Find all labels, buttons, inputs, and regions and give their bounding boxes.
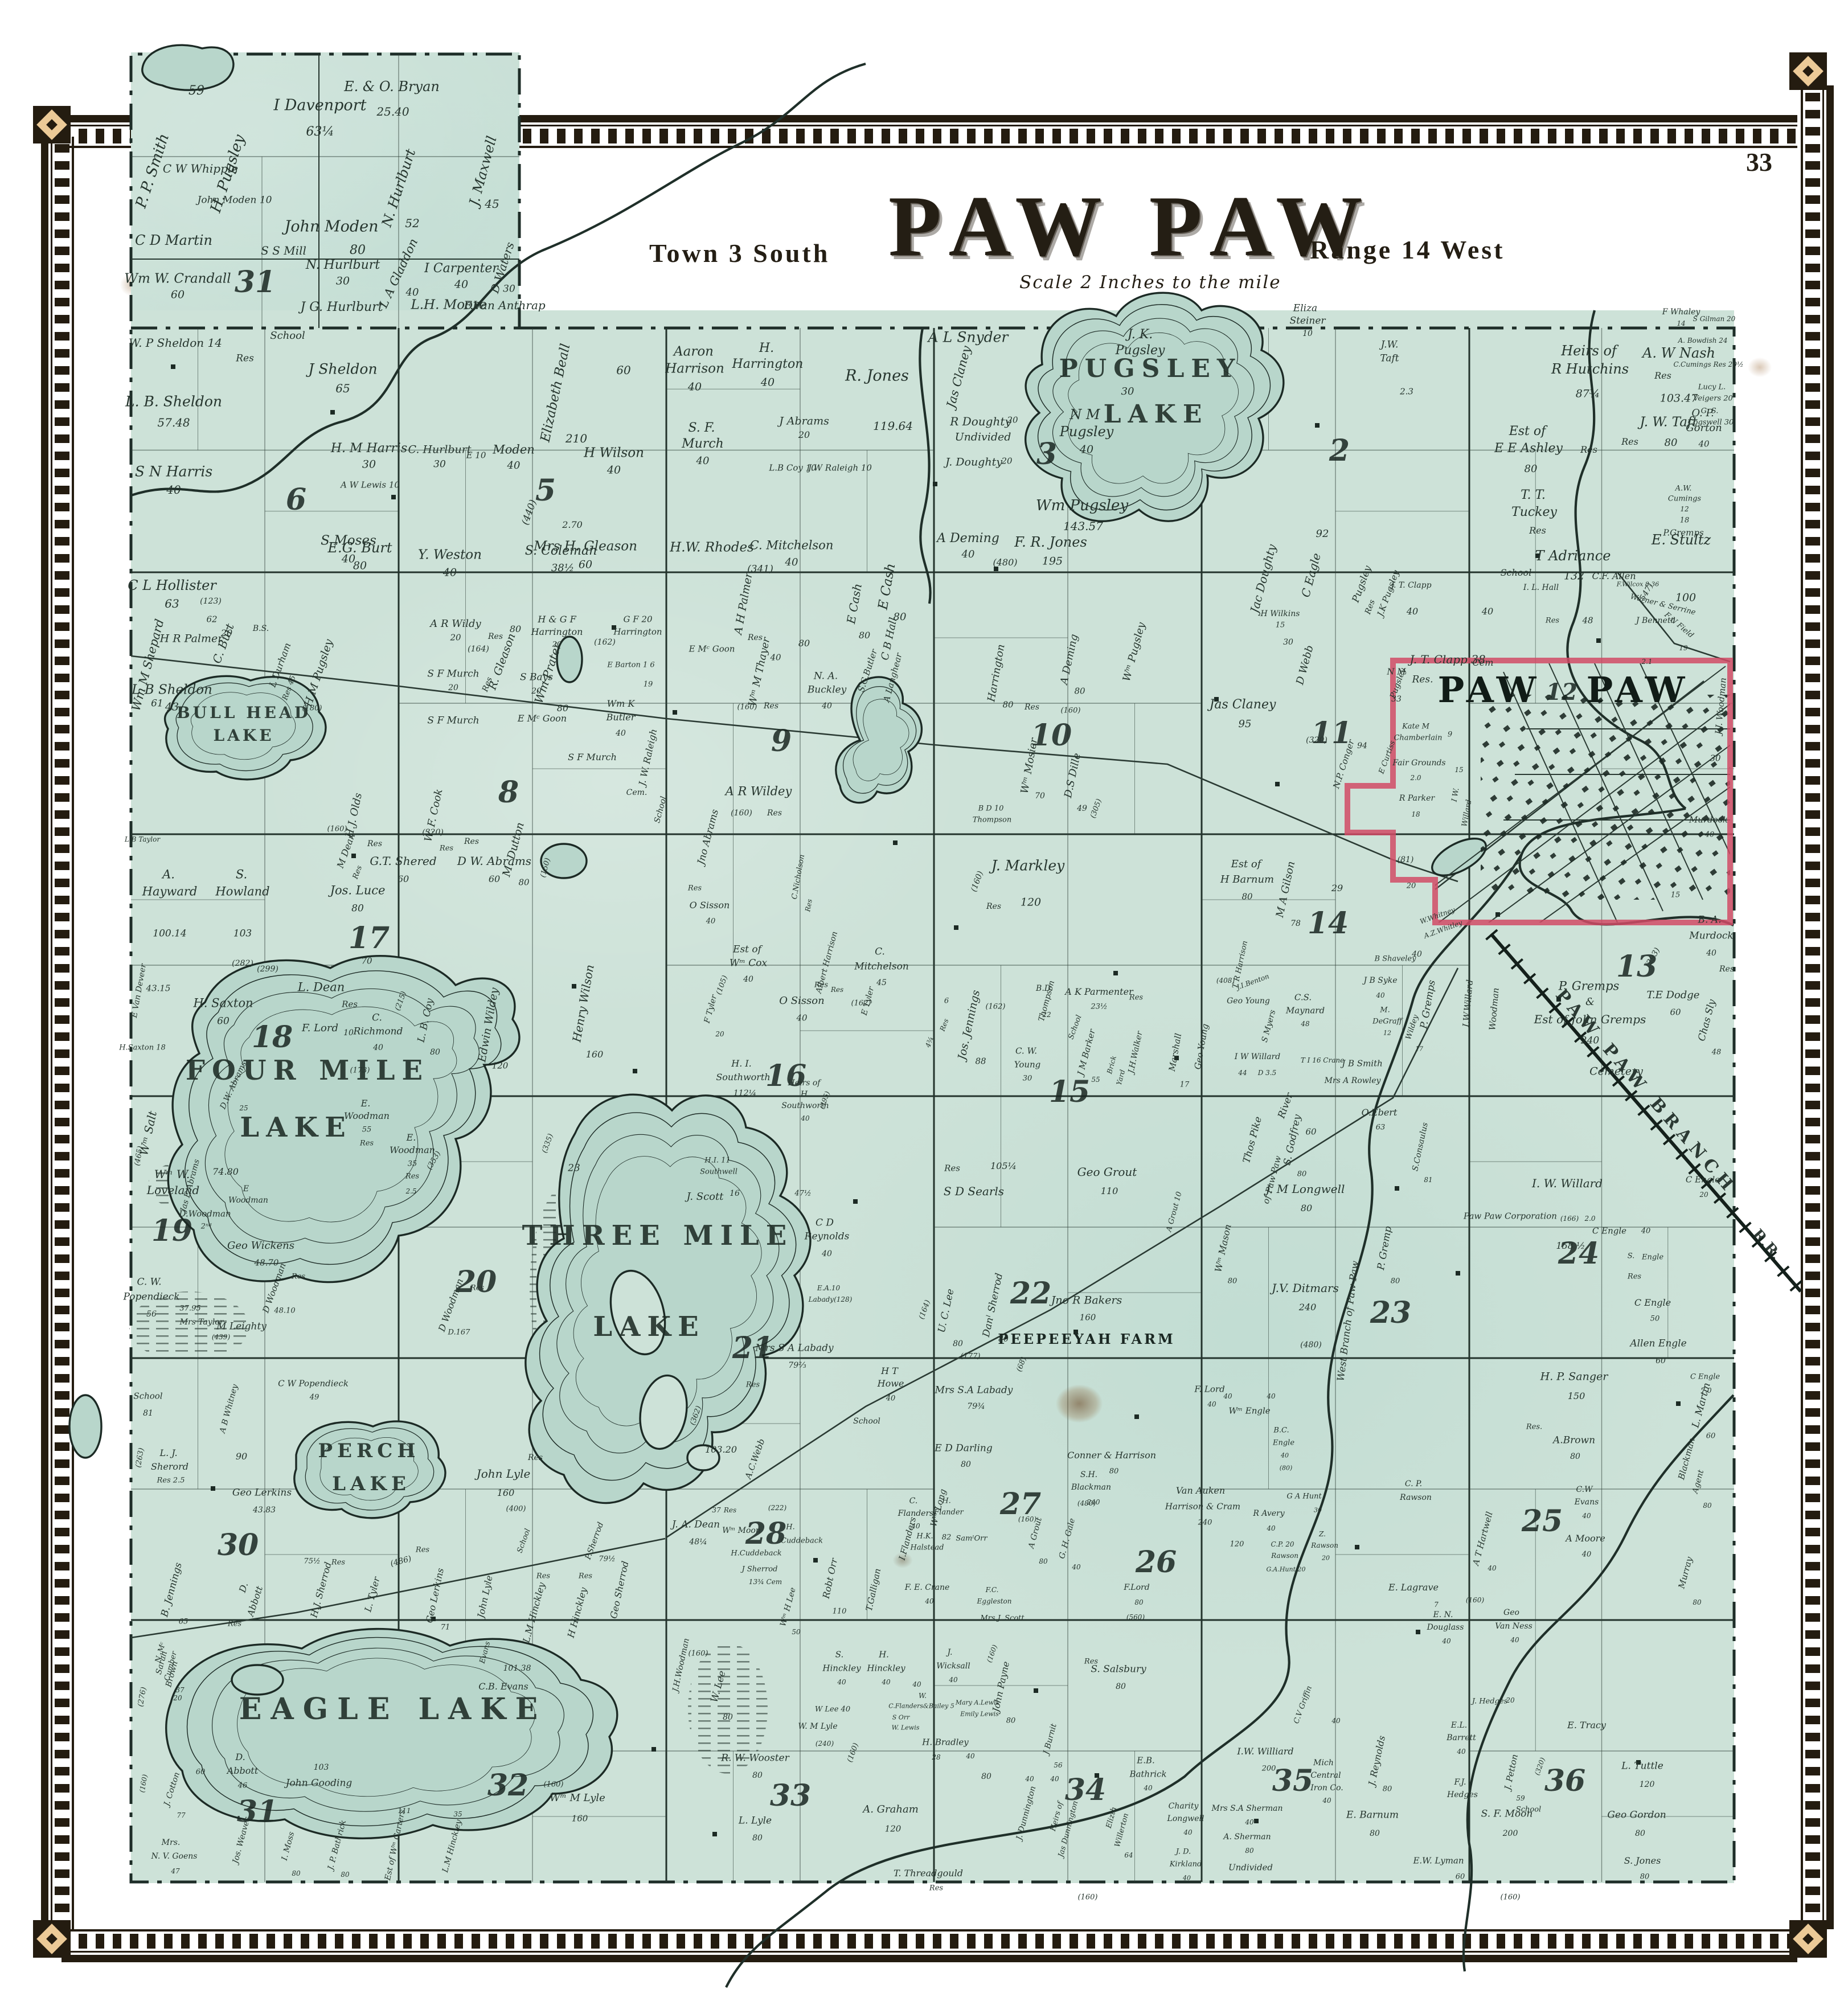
owner-label: 200: [1262, 1765, 1276, 1773]
owner-label: D.S Dille: [1063, 752, 1083, 799]
owner-label: 40: [696, 456, 710, 466]
owner-label: Wᵐ Moon: [722, 1527, 761, 1535]
owner-label: Res: [352, 864, 363, 880]
owner-label: 48: [1582, 617, 1593, 625]
owner-label: J.W.: [1381, 341, 1399, 350]
owner-label: J. P. Bathrick: [327, 1819, 348, 1871]
owner-label: (282): [232, 959, 253, 967]
owner-label: Van Auken: [1176, 1486, 1225, 1495]
owner-label: 103: [233, 929, 252, 939]
owner-label: Reynolds: [805, 1232, 850, 1242]
owner-label: Res 2.5: [157, 1477, 185, 1485]
owner-label: 35: [453, 1811, 462, 1818]
owner-label: M Leighty: [216, 1322, 267, 1332]
owner-label: Undivided: [1228, 1864, 1273, 1872]
owner-label: Est of: [1231, 859, 1261, 870]
owner-label: 47: [171, 1868, 179, 1875]
owner-label: Richmond: [354, 1027, 403, 1037]
owner-label: Chamberlain: [1394, 735, 1442, 742]
owner-label: Labady(128): [809, 1296, 853, 1303]
owner-label: Pugsley: [1060, 425, 1114, 438]
section-number: 23: [1370, 1298, 1411, 1328]
lake-label: PERCH: [318, 1441, 420, 1461]
owner-label: Res: [814, 982, 828, 989]
owner-label: E.A.10: [817, 1285, 840, 1291]
owner-label: Hinckley: [867, 1664, 905, 1673]
owner-label: (480): [1300, 1341, 1322, 1349]
map-labels-layer: PAW12PAWPUGSLEYLAKEBULL HEADLAKEFOUR MIL…: [0, 0, 1848, 1993]
page-number: 33: [1746, 147, 1772, 177]
section-number: 14: [1308, 909, 1349, 938]
owner-label: I. Moss: [281, 1831, 296, 1861]
scale-label: Scale 2 Inches to the mile: [1019, 272, 1281, 293]
owner-label: 120: [1021, 897, 1041, 908]
owner-label: 90: [236, 1452, 247, 1461]
owner-label: (480): [993, 558, 1017, 567]
owner-label: J.H.Woodman: [671, 1638, 691, 1692]
owner-label: Res: [1628, 1273, 1641, 1281]
owner-label: 20: [1322, 1555, 1330, 1561]
owner-label: 40: [1376, 992, 1384, 999]
owner-label: 80: [353, 561, 367, 572]
owner-label: Abbott: [246, 1585, 264, 1618]
owner-label: Res: [405, 1173, 419, 1180]
owner-label: 40: [1025, 1775, 1034, 1782]
owner-label: 80: [1245, 1847, 1253, 1854]
owner-label: J. M Longwell: [1266, 1183, 1345, 1195]
owner-label: E Mᶜ Goon: [518, 714, 567, 723]
owner-label: 80: [1297, 1171, 1307, 1178]
owner-label: G A Hunt: [1286, 1493, 1321, 1500]
owner-label: 95: [1239, 719, 1252, 729]
owner-label: 40: [801, 1115, 809, 1122]
owner-label: 65: [335, 383, 350, 394]
owner-label: C Engle: [1686, 1176, 1720, 1184]
owner-label: 65: [179, 1618, 189, 1626]
owner-label: F.Wilcox 8.36: [1617, 581, 1659, 588]
owner-label: (240): [816, 1740, 834, 1747]
owner-label: 40: [925, 1598, 933, 1605]
owner-label: S. F.: [688, 422, 715, 434]
owner-label: 40: [837, 1679, 846, 1686]
owner-label: I.W.Willard: [1462, 979, 1474, 1028]
owner-label: Cumings: [1668, 495, 1701, 503]
owner-label: 70: [1035, 792, 1045, 800]
owner-label: 56: [1054, 1762, 1062, 1769]
owner-label: Res: [367, 840, 382, 848]
owner-label: J G. Hurlburt: [300, 301, 383, 314]
owner-label: 40: [507, 461, 521, 471]
owner-label: Est of: [1509, 425, 1546, 438]
owner-label: 20: [798, 430, 810, 440]
owner-label: 80: [859, 631, 870, 640]
owner-label: 195: [1042, 556, 1063, 567]
owner-label: Flanders: [898, 1510, 934, 1518]
owner-label: (160): [1501, 1894, 1521, 1901]
owner-label: Willerton: [1114, 1812, 1130, 1848]
owner-label: 79½: [599, 1556, 615, 1563]
owner-label: G. H. Gale: [1058, 1518, 1076, 1560]
owner-label: 92: [1316, 529, 1329, 539]
owner-label: U. C. Lee: [937, 1288, 956, 1334]
owner-label: Res: [331, 1559, 345, 1566]
owner-label: I W Willard: [1235, 1053, 1280, 1061]
owner-label: Res: [1364, 598, 1376, 615]
owner-label: 60: [171, 290, 185, 301]
owner-label: 80: [998, 1335, 1009, 1343]
owner-label: 71: [441, 1624, 450, 1631]
owner-label: Charity: [1169, 1802, 1199, 1810]
owner-label: 29: [1331, 884, 1343, 893]
lake-label: LAKE: [332, 1474, 411, 1494]
owner-label: G. S.: [1701, 408, 1719, 415]
owner-label: Res 45: [281, 675, 297, 702]
owner-label: S Orr: [892, 1715, 910, 1721]
owner-label: H: [801, 1090, 808, 1098]
owner-label: P. Gremps: [1559, 981, 1620, 993]
owner-label: 43: [165, 702, 179, 713]
owner-label: R Hutchins: [1551, 362, 1629, 376]
owner-label: Res: [944, 1164, 960, 1173]
owner-label: 18: [1680, 517, 1690, 524]
owner-label: (276): [137, 1687, 148, 1708]
owner-label: (160): [1061, 707, 1081, 715]
owner-label: B.S.: [253, 625, 269, 633]
owner-label: Lucy L.: [1698, 384, 1726, 391]
owner-label: 40: [1705, 831, 1715, 839]
owner-label: R. W. Wooster: [721, 1754, 789, 1764]
owner-label: &: [1585, 997, 1595, 1007]
owner-label: Res: [724, 1507, 736, 1514]
owner-label: H. M Harris: [331, 442, 407, 455]
owner-label: D W. Abrams: [457, 855, 531, 867]
owner-label: S F Murch: [427, 670, 479, 679]
owner-label: 103.20: [705, 1445, 737, 1454]
owner-label: A R Wildey: [726, 786, 792, 798]
owner-label: E.L.: [1451, 1721, 1467, 1729]
section-number: 22: [1010, 1279, 1051, 1309]
owner-label: 63: [1376, 1124, 1386, 1131]
owner-label: H M Pugsley: [303, 638, 335, 708]
owner-label: E Cash: [877, 563, 898, 611]
owner-label: E Tyler: [861, 986, 876, 1016]
owner-label: 2.5: [405, 1188, 416, 1195]
owner-label: Res: [228, 1621, 241, 1628]
owner-label: W.: [919, 1692, 927, 1699]
owner-label: 82: [942, 1534, 952, 1541]
owner-label: Elizth: [1105, 1806, 1118, 1829]
owner-label: 40: [706, 918, 716, 925]
owner-label: Mrs.: [162, 1839, 181, 1847]
owner-label: Res: [416, 1547, 429, 1554]
owner-label: Res: [764, 702, 778, 710]
owner-label: Halstead: [911, 1544, 944, 1552]
owner-label: (495): [818, 1090, 831, 1110]
owner-label: 30: [1710, 754, 1720, 763]
owner-label: 18: [1411, 811, 1420, 818]
owner-label: 94: [1357, 742, 1367, 750]
owner-label: 40: [962, 549, 975, 560]
owner-label: 4¾: [924, 1036, 935, 1048]
owner-label: J. Cotton: [163, 1771, 181, 1807]
owner-label: H.: [759, 342, 774, 355]
owner-label: S Bays: [520, 673, 553, 683]
owner-label: 40: [406, 288, 419, 298]
owner-label: 40: [882, 1679, 890, 1686]
owner-label: Popendieck: [123, 1293, 179, 1302]
owner-label: Jos. Jennings: [957, 989, 982, 1061]
owner-label: Res: [470, 1285, 484, 1292]
owner-label: S S Mill: [261, 245, 306, 256]
owner-label: J.H.Walker: [1127, 1031, 1144, 1074]
owner-label: 59: [1516, 1795, 1525, 1802]
owner-label: 25: [239, 1105, 248, 1112]
owner-label: 17: [1180, 1081, 1190, 1089]
owner-label: T. Threadgould: [894, 1869, 963, 1878]
owner-label: A Deming: [1059, 633, 1080, 686]
owner-label: 48.10: [274, 1307, 295, 1315]
owner-label: H & G F: [538, 615, 576, 624]
owner-label: 2.0: [1584, 1215, 1595, 1222]
owner-label: 12: [1383, 1030, 1391, 1036]
owner-label: E Mᶜ Goon: [689, 645, 735, 654]
owner-label: C.: [875, 948, 885, 957]
owner-label: Est of John Gremps: [1534, 1014, 1646, 1025]
owner-label: 20: [450, 634, 461, 642]
owner-label: C. Hurlburt: [408, 445, 471, 456]
owner-label: H T: [881, 1367, 898, 1376]
section-number: 25: [1522, 1507, 1563, 1536]
owner-label: 40: [1510, 1637, 1519, 1643]
owner-label: 49: [310, 1394, 319, 1401]
owner-label: Flander: [934, 1509, 964, 1516]
owner-label: L. B. Sheldon: [125, 395, 222, 409]
owner-label: F. Lord: [302, 1023, 338, 1034]
owner-label: C.: [372, 1014, 382, 1023]
owner-label: S F Murch: [568, 753, 617, 762]
owner-label: C.B. Evans: [478, 1682, 528, 1691]
section-number: 35: [1272, 1766, 1313, 1796]
owner-label: School: [516, 1528, 531, 1554]
owner-label: Geo Young: [1227, 997, 1270, 1005]
owner-label: Thompson: [973, 817, 1011, 824]
owner-label: H. P. Sanger: [1540, 1372, 1608, 1383]
owner-label: E Barton 1 6: [607, 662, 654, 669]
owner-label: A Deming: [937, 532, 999, 545]
owner-label: J J. Woodman: [1714, 678, 1728, 735]
owner-label: E Van Deveer: [130, 963, 147, 1019]
owner-label: Mrs S.A Labady: [935, 1386, 1013, 1396]
owner-label: D Woodman: [437, 1277, 465, 1332]
owner-label: 16: [730, 1190, 740, 1198]
owner-label: Buckley: [808, 686, 846, 695]
owner-label: 100.14: [153, 929, 186, 939]
owner-label: (362): [689, 1405, 703, 1426]
owner-label: N M: [1070, 408, 1100, 421]
owner-label: 19: [1679, 645, 1687, 651]
owner-label: 110: [833, 1608, 847, 1615]
owner-label: 40: [1267, 1393, 1275, 1400]
lake-label: LAKE: [240, 1114, 352, 1141]
section-number: 17: [349, 924, 390, 953]
owner-label: School: [1501, 568, 1532, 577]
owner-label: Est of Wᵐ Carters: [384, 1809, 407, 1881]
section-number: 26: [1136, 1548, 1177, 1577]
owner-label: Res: [342, 1000, 358, 1009]
owner-label: 30: [1283, 638, 1293, 646]
owner-label: J. D.: [1176, 1848, 1191, 1856]
owner-label: Van Ness: [1495, 1622, 1533, 1630]
owner-label: Henry Wilson: [571, 964, 596, 1043]
owner-label: C. W.: [137, 1278, 161, 1287]
railroad-label: R.R.: [1749, 1227, 1784, 1262]
owner-label: Wm K: [607, 699, 635, 708]
owner-label: E Curtiss: [1378, 740, 1396, 775]
owner-label: 40: [743, 975, 753, 983]
owner-label: 80: [1134, 1599, 1143, 1606]
owner-label: Harrison & Cram: [1165, 1503, 1240, 1511]
owner-label: H. Bradley: [922, 1738, 969, 1747]
owner-label: 40: [1641, 1228, 1651, 1235]
owner-label: 2.70: [562, 520, 583, 530]
owner-label: 88: [975, 1057, 986, 1066]
owner-label: (162): [594, 638, 616, 646]
owner-label: Willard: [1461, 799, 1473, 827]
owner-label: 47½: [794, 1190, 811, 1198]
owner-label: (440): [521, 499, 539, 527]
section-number: 12: [1546, 681, 1577, 704]
owner-label: Geo Young: [1194, 1023, 1210, 1071]
owner-label: 60: [1670, 1008, 1681, 1017]
owner-label: 6: [944, 998, 949, 1005]
owner-label: A.Brown: [1553, 1436, 1595, 1446]
owner-label: H.K.: [916, 1533, 933, 1540]
owner-label: S.Consaulus: [1411, 1122, 1429, 1172]
owner-label: M. Dutton: [501, 821, 526, 878]
owner-label: 55: [1091, 1076, 1100, 1083]
section-number: 31: [235, 268, 276, 297]
owner-label: C Engle: [1634, 1298, 1671, 1307]
owner-label: John Payne: [991, 1660, 1011, 1712]
owner-label: J. Dunnington: [1015, 1785, 1038, 1841]
owner-label: J. T. Clapp: [1391, 581, 1431, 589]
owner-label: 60: [217, 1017, 230, 1027]
owner-label: H Barnum: [1220, 875, 1274, 885]
owner-label: (164): [918, 1299, 932, 1320]
owner-label: R Doughty: [950, 416, 1011, 427]
owner-label: John Moden: [285, 219, 379, 235]
owner-label: (166): [1560, 1215, 1579, 1222]
owner-label: 55: [362, 1126, 372, 1134]
owner-label: Res: [1654, 371, 1671, 380]
owner-label: A. W Nash: [1642, 346, 1715, 360]
owner-label: (164): [468, 645, 489, 653]
owner-label: 40: [770, 654, 781, 662]
owner-label: 49: [1077, 805, 1087, 813]
owner-label: P. Gremps: [1419, 979, 1437, 1030]
owner-label: 74.80: [212, 1167, 239, 1176]
owner-label: S.H.: [1080, 1471, 1097, 1479]
owner-label: 45: [876, 979, 887, 987]
owner-label: 80: [798, 639, 810, 648]
owner-label: (160): [1018, 1516, 1036, 1523]
owner-label: J. Doughty: [945, 457, 1002, 468]
owner-label: H Hinckley: [567, 1586, 589, 1639]
owner-label: Yard: [1116, 1069, 1126, 1086]
owner-label: J B Syke: [1363, 977, 1397, 985]
owner-label: 43.83: [253, 1506, 276, 1514]
owner-label: 60: [196, 1769, 206, 1776]
owner-label: (180): [302, 705, 322, 712]
owner-label: Eggleston: [977, 1598, 1012, 1605]
owner-label: Mrs S.A Sherman: [1212, 1805, 1283, 1812]
owner-label: 40: [1482, 607, 1493, 616]
owner-label: Murdock: [1689, 932, 1733, 941]
owner-label: Evans: [479, 1641, 492, 1664]
owner-label: F.Van Anthrap: [464, 300, 545, 311]
owner-label: Iron Co.: [1310, 1784, 1343, 1792]
owner-label: (160): [544, 1781, 564, 1789]
owner-label: (320): [1306, 736, 1327, 744]
owner-label: 112¼: [734, 1089, 756, 1097]
owner-label: 17: [1415, 1046, 1423, 1052]
owner-label: Evans: [1575, 1498, 1599, 1506]
owner-label: Geo Gordon: [1607, 1811, 1666, 1820]
owner-label: Res: [804, 899, 813, 912]
owner-label: H.Saxton 18: [119, 1044, 166, 1052]
owner-label: 30: [1121, 387, 1134, 397]
owner-label: John Moden 10: [198, 196, 272, 206]
owner-label: A.C.Webb: [744, 1438, 766, 1480]
owner-label: F.J.: [1454, 1778, 1466, 1786]
owner-label: 40: [822, 1250, 832, 1258]
owner-label: N. V. Goens: [151, 1852, 198, 1860]
owner-label: 37.95: [179, 1305, 200, 1313]
owner-label: S F Murch: [427, 716, 479, 726]
farm-label: PEEPEEYAH FARM: [998, 1332, 1175, 1346]
owner-label: O.Ebert: [1362, 1108, 1398, 1117]
owner-label: 20: [1699, 1191, 1708, 1198]
owner-label: 80: [510, 625, 521, 634]
owner-label: E.: [361, 1099, 371, 1108]
owner-label: 80: [1525, 464, 1538, 474]
owner-label: 87¾: [1576, 389, 1600, 400]
owner-label: John Gooding: [286, 1779, 353, 1789]
owner-label: S. Salsbury: [1091, 1665, 1146, 1675]
owner-label: Mrs S A Labady: [755, 1344, 833, 1354]
owner-label: Mrs Taylor: [180, 1318, 224, 1326]
owner-label: F. R. Jones: [1014, 535, 1087, 549]
owner-label: A K Parmenter: [1065, 987, 1133, 996]
owner-label: H.J. Olds: [345, 792, 364, 839]
village-label: PAW: [1438, 672, 1541, 708]
owner-label: 240: [1299, 1303, 1317, 1312]
owner-label: Res: [929, 1885, 943, 1892]
owner-label: 80: [557, 704, 568, 713]
owner-label: (173): [350, 1067, 370, 1075]
owner-label: 48.70: [255, 1259, 279, 1268]
owner-label: 40: [1183, 1829, 1192, 1836]
owner-label: 19: [644, 681, 653, 688]
owner-label: 61: [151, 699, 163, 709]
owner-label: Wm W. Crandall: [124, 273, 231, 286]
owner-label: J.W Raleigh 10: [808, 464, 872, 473]
owner-label: M.: [1380, 1007, 1390, 1014]
owner-label: H Wilkins: [1261, 610, 1300, 618]
owner-label: Rawson: [1311, 1542, 1338, 1549]
owner-label: C L Hollister: [128, 579, 216, 592]
owner-label: 103.47: [1660, 393, 1698, 404]
